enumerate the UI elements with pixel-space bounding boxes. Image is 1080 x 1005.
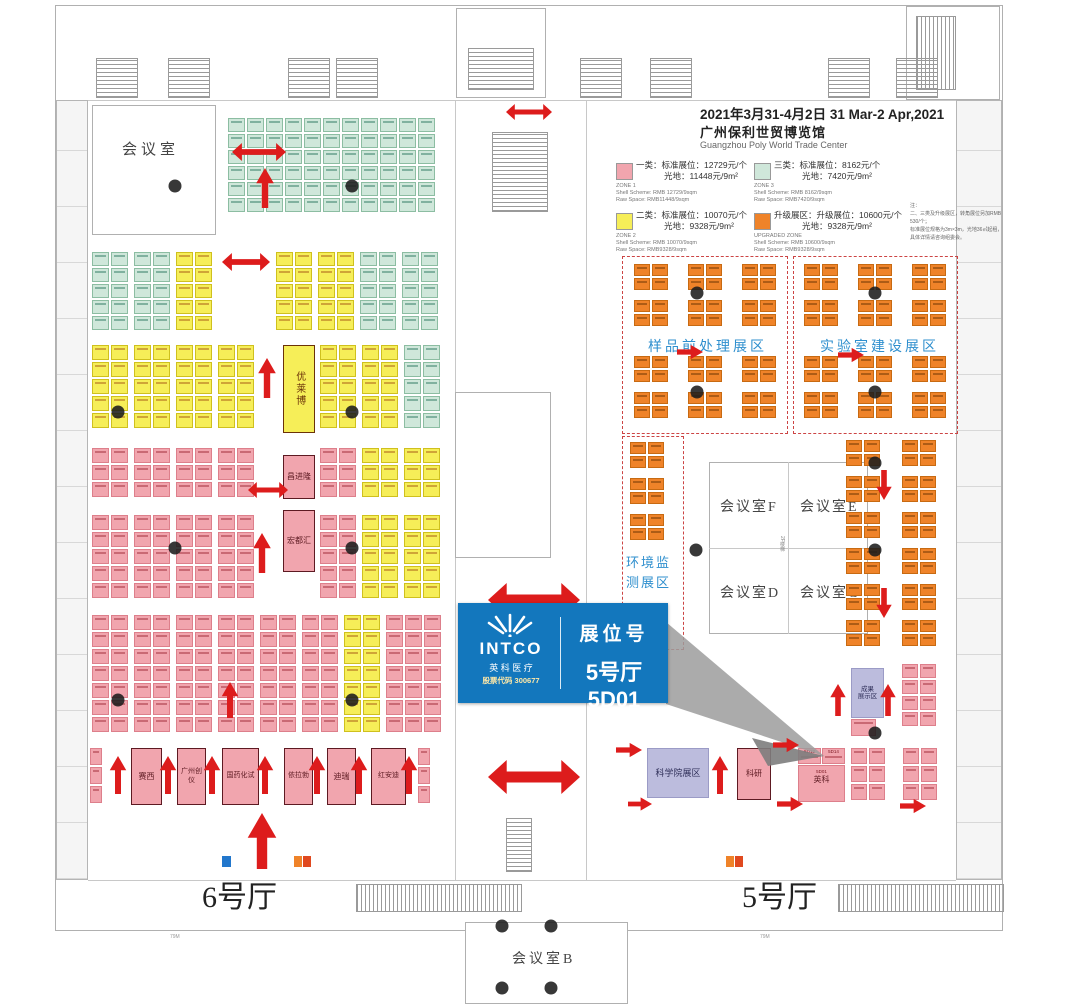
room-b-label: 会议室B (512, 948, 575, 968)
booth-cell (399, 134, 416, 148)
booth-cell (134, 632, 151, 647)
booth-row6-2-label: 国药化试 (227, 772, 255, 780)
booth-cell (404, 482, 421, 497)
booth-cell (218, 482, 235, 497)
booth-cell (921, 766, 937, 782)
booth-cell (424, 717, 441, 732)
booth-cell (134, 379, 151, 394)
hall5-escalator (838, 884, 1004, 912)
booth-cell (134, 566, 151, 581)
booth-cell (846, 584, 862, 596)
booth-cell (858, 356, 874, 368)
booth-cell (279, 717, 296, 732)
booth-cell (362, 482, 379, 497)
booth-cell (379, 252, 396, 266)
booth-cell (380, 150, 397, 164)
booth-cell (876, 392, 892, 404)
booth-cell (399, 118, 416, 132)
booth-cell (323, 198, 340, 212)
booth-cell (92, 666, 109, 681)
hall6-escalator (356, 884, 522, 912)
stair-core (580, 58, 622, 98)
booth-cell (920, 620, 936, 632)
booth-cell (218, 465, 235, 480)
legend-zone2: 二类：标准展位：10070元/个光地：9328元/9m² ZONE 2Shell… (616, 210, 748, 254)
booth-cell (404, 362, 421, 377)
booth-cell (920, 490, 936, 502)
legend-zone3-en1: ZONE 3 (754, 183, 774, 189)
booth-cell (339, 396, 356, 411)
booth-cell (111, 632, 128, 647)
booth-cell (912, 300, 928, 312)
booth-cell (920, 634, 936, 646)
legend-zone2-en3: Raw Space: RMB9328/9sqm (616, 247, 687, 253)
booth-cell (851, 719, 876, 736)
booth-cell (869, 784, 885, 800)
booth-cell (302, 717, 319, 732)
booth-cell (92, 300, 109, 314)
booth-cell (176, 700, 193, 715)
booth-cell (176, 632, 193, 647)
booth-cell (237, 549, 254, 564)
booth-cell (423, 583, 440, 598)
booth-cell (176, 532, 193, 547)
booth-cell (421, 268, 438, 282)
booth-cell (339, 362, 356, 377)
booth-cell (92, 396, 109, 411)
booth-cell (92, 316, 109, 330)
booth-cell (846, 440, 862, 452)
booth-cell (846, 620, 862, 632)
booth-cell (405, 615, 422, 630)
booth-cell (869, 748, 885, 764)
room-d-label: 会议室D (720, 582, 780, 602)
booth-cell (285, 182, 302, 196)
booth-cell (111, 379, 128, 394)
booth-cell (930, 300, 946, 312)
booth-cell (92, 566, 109, 581)
booth-cell (176, 649, 193, 664)
booth-cell (344, 649, 361, 664)
legend-upgraded-en2: Shell Scheme: RMB 10600/9sqm (754, 240, 835, 246)
booth-cell (237, 666, 254, 681)
booth-cell (237, 413, 254, 428)
booth-cell (339, 379, 356, 394)
booth-cell (153, 362, 170, 377)
booth-cell (423, 379, 440, 394)
booth-cell (247, 134, 264, 148)
booth-cell (405, 666, 422, 681)
booth-cell (864, 584, 880, 596)
booth-cell (920, 476, 936, 488)
booth-cell (418, 748, 430, 765)
booth-cell (320, 396, 337, 411)
booth-cell (134, 362, 151, 377)
venue-name-en: Guangzhou Poly World Trade Center (700, 140, 847, 150)
booth-cell (218, 532, 235, 547)
booth-cell (321, 683, 338, 698)
academy-zone-block: 科学院展区 (647, 748, 709, 798)
booth-cell (176, 566, 193, 581)
booth-cell (402, 316, 419, 330)
legend-zone3: 三类：标准展位：8162元/个光地：7420元/9m² ZONE 3Shell … (754, 160, 886, 204)
booth-cell (323, 150, 340, 164)
booth-cell (320, 482, 337, 497)
booth-cell (153, 566, 170, 581)
booth-cell (362, 566, 379, 581)
booth-cell (804, 278, 820, 290)
booth-cell (237, 683, 254, 698)
booth-cell (276, 252, 293, 266)
booth-cell (822, 392, 838, 404)
booth-cell (337, 268, 354, 282)
booth-cell (404, 566, 421, 581)
booth-cell (912, 356, 928, 368)
booth-cell (321, 700, 338, 715)
booth-hongduhui: 宏都汇 (283, 510, 315, 572)
booth-cell (804, 356, 820, 368)
sample-zone-label: 样品前处理展区 (648, 336, 767, 356)
booth-cell (111, 316, 128, 330)
booth-cell (742, 392, 758, 404)
booth-cell (634, 370, 650, 382)
booth-cell (134, 413, 151, 428)
amenity-marker-orange-1 (294, 856, 302, 867)
booth-cell (404, 515, 421, 530)
booth-cell (321, 666, 338, 681)
booth-cell (92, 448, 109, 463)
booth-cell (362, 345, 379, 360)
booth-cell (424, 649, 441, 664)
booth-row6-0: 赛西 (131, 748, 162, 805)
booth-cell (237, 362, 254, 377)
booth-cell (237, 465, 254, 480)
booth-cell (902, 620, 918, 632)
booth-cell (111, 345, 128, 360)
booth-cell (381, 549, 398, 564)
booth-cell (195, 362, 212, 377)
booth-cell (339, 515, 356, 530)
booth-cell (153, 700, 170, 715)
booth-cell (176, 448, 193, 463)
booth-cell (247, 182, 264, 196)
booth-cell (360, 316, 377, 330)
booth-cell (339, 549, 356, 564)
booth-cell (688, 314, 704, 326)
booth-cell (295, 316, 312, 330)
booth-cell (195, 566, 212, 581)
booth-cell (380, 182, 397, 196)
booth-cell (320, 566, 337, 581)
booth-cell (337, 252, 354, 266)
booth-cell (320, 362, 337, 377)
booth-cell (339, 345, 356, 360)
legend: 一类：标准展位：12729元/个光地：11448元/9m² ZONE 1Shel… (616, 160, 1006, 252)
booth-cell (134, 396, 151, 411)
booth-cell (218, 615, 235, 630)
booth-cell (195, 345, 212, 360)
booth-cell (423, 566, 440, 581)
intco-code-cell-2: 5D14 (822, 748, 845, 764)
booth-cell (864, 620, 880, 632)
legend-zone3-cn2: 光地：7420元/9m² (802, 171, 872, 181)
booth-cell (380, 118, 397, 132)
booth-cell (111, 465, 128, 480)
booth-cell (111, 549, 128, 564)
booth-cell (90, 786, 102, 803)
meeting-room-label: 会议室 (122, 138, 179, 159)
booth-cell (362, 532, 379, 547)
booth-cell (153, 284, 170, 298)
booth-cell (804, 406, 820, 418)
booth-cell (846, 490, 862, 502)
booth-cell (742, 356, 758, 368)
intco-stock: 股票代码 300677 (471, 675, 551, 686)
booth-cell (134, 515, 151, 530)
booth-cell (648, 456, 664, 468)
stair-core (650, 58, 692, 98)
booth-cell (176, 413, 193, 428)
booth-row6-3-label: 依拉勃 (288, 772, 309, 780)
legend-upgraded-cn1: 升级展区：升级展位：10600元/个 (774, 210, 902, 220)
booth-cell (688, 356, 704, 368)
booth-cell (386, 700, 403, 715)
booth-cell (218, 413, 235, 428)
booth-cell (111, 583, 128, 598)
booth-cell (424, 632, 441, 647)
booth-cell (361, 118, 378, 132)
booth-cell (153, 379, 170, 394)
booth-cell (237, 448, 254, 463)
booth-cell (418, 786, 430, 803)
booth-cell (195, 632, 212, 647)
stair-core (96, 58, 138, 98)
booth-cell (323, 134, 340, 148)
booth-cell (218, 717, 235, 732)
booth-cell (869, 766, 885, 782)
booth-cell (320, 465, 337, 480)
intco-main-cell: 5D01 英科 (798, 765, 845, 802)
booth-cell (912, 314, 928, 326)
booth-cell (153, 683, 170, 698)
booth-cell (320, 515, 337, 530)
booth-cell (630, 456, 646, 468)
booth-cell (421, 300, 438, 314)
booth-cell (195, 465, 212, 480)
booth-cell (111, 700, 128, 715)
booth-cell (176, 316, 193, 330)
booth-cell (688, 392, 704, 404)
booth-cell (902, 634, 918, 646)
booth-cell (404, 532, 421, 547)
central-core (455, 392, 551, 558)
booth-cell (360, 252, 377, 266)
intco-code-cell-1: 5D13 (798, 748, 821, 764)
booth-cell (903, 784, 919, 800)
booth-cell (386, 615, 403, 630)
booth-cell (195, 583, 212, 598)
booth-cell (337, 316, 354, 330)
booth-cell (706, 278, 722, 290)
booth-cell (111, 413, 128, 428)
booth-cell (846, 634, 862, 646)
booth-cell (418, 134, 435, 148)
left-service-corridor (56, 100, 88, 880)
booth-cell (648, 492, 664, 504)
booth-cell (858, 314, 874, 326)
booth-cell (902, 526, 918, 538)
booth-cell (92, 717, 109, 732)
corridor-wall-right (586, 100, 587, 880)
legend-zone1-en1: ZONE 1 (616, 183, 636, 189)
legend-zone3-en3: Raw Space: RMB7420/9sqm (754, 197, 825, 203)
booth-cell (858, 300, 874, 312)
event-date: 2021年3月31-4月2日 31 Mar-2 Apr,2021 (700, 103, 944, 123)
booth-cell (237, 532, 254, 547)
booth-cell (176, 300, 193, 314)
booth-cell (176, 583, 193, 598)
booth-cell (111, 615, 128, 630)
booth-cell (344, 683, 361, 698)
booth-cell (237, 700, 254, 715)
booth-cell (218, 515, 235, 530)
booth-cell (260, 683, 277, 698)
legend-zone2-swatch (616, 213, 633, 230)
booth-cell (218, 583, 235, 598)
booth-cell (134, 615, 151, 630)
booth-cell (111, 532, 128, 547)
booth-cell (706, 264, 722, 276)
booth-cell (822, 356, 838, 368)
booth-cell (920, 512, 936, 524)
booth-cell (134, 448, 151, 463)
booth-cell (92, 362, 109, 377)
callout-booth-number: 5号厅5D01 (562, 655, 666, 713)
booth-cell (920, 562, 936, 574)
booth-cell (630, 492, 646, 504)
booth-cell (302, 683, 319, 698)
booth-cell (688, 406, 704, 418)
booth-changjinlong-label: 昌进隆 (287, 472, 311, 481)
booth-cell (418, 166, 435, 180)
booth-cell (423, 362, 440, 377)
booth-cell (111, 252, 128, 266)
booth-cell (363, 632, 380, 647)
booth-cell (237, 649, 254, 664)
booth-hongduhui-label: 宏都汇 (287, 536, 311, 545)
booth-cell (652, 278, 668, 290)
legend-zone2-cn2: 光地：9328元/9m² (664, 221, 734, 231)
booth-cell (195, 284, 212, 298)
booth-cell (260, 632, 277, 647)
booth-cell (760, 278, 776, 290)
venue-name-cn: 广州保利世贸博览馆 (700, 122, 826, 141)
booth-cell (279, 649, 296, 664)
booth-cell (92, 515, 109, 530)
booth-cell (912, 392, 928, 404)
booth-cell (237, 345, 254, 360)
booth-cell (176, 615, 193, 630)
booth-cell (153, 515, 170, 530)
booth-cell (195, 717, 212, 732)
booth-cell (921, 784, 937, 800)
booth-cell (405, 683, 422, 698)
booth-cell (134, 268, 151, 282)
booth-cell (228, 150, 245, 164)
booth-cell (634, 392, 650, 404)
lower-escalator (506, 818, 532, 872)
booth-cell (930, 264, 946, 276)
booth-cell (92, 649, 109, 664)
booth-cell (279, 700, 296, 715)
booth-cell (90, 748, 102, 765)
fedc-horizontal-wall (709, 548, 868, 549)
booth-cell (418, 150, 435, 164)
booth-cell (864, 490, 880, 502)
booth-cell (92, 482, 109, 497)
booth-cell (634, 314, 650, 326)
booth-cell (634, 406, 650, 418)
booth-cell (360, 300, 377, 314)
stair-core (828, 58, 870, 98)
booth-cell (195, 396, 212, 411)
booth-cell (344, 717, 361, 732)
booth-cell (920, 712, 936, 726)
booth-cell (195, 482, 212, 497)
hall5-label: 5号厅 (742, 872, 817, 916)
booth-cell (902, 490, 918, 502)
booth-cell (399, 198, 416, 212)
booth-cell (323, 118, 340, 132)
booth-cell (111, 666, 128, 681)
legend-zone1-swatch (616, 163, 633, 180)
booth-cell (342, 198, 359, 212)
stair-core (168, 58, 210, 98)
booth-cell (237, 615, 254, 630)
booth-cell (424, 615, 441, 630)
booth-cell (153, 583, 170, 598)
booth-cell (822, 278, 838, 290)
booth-cell (228, 166, 245, 180)
booth-cell (912, 278, 928, 290)
booth-cell (176, 362, 193, 377)
booth-cell (276, 316, 293, 330)
booth-cell (237, 379, 254, 394)
booth-cell (903, 766, 919, 782)
booth-cell (381, 532, 398, 547)
booth-row6-4: 迪瑞 (327, 748, 356, 805)
booth-cell (920, 440, 936, 452)
booth-cell (260, 717, 277, 732)
booth-youlaibo: 优莱博 (283, 345, 315, 433)
booth-cell (176, 284, 193, 298)
booth-cell (930, 392, 946, 404)
booth-cell (228, 198, 245, 212)
booth-cell (634, 278, 650, 290)
booth-cell (153, 649, 170, 664)
booth-cell (363, 717, 380, 732)
booth-cell (134, 666, 151, 681)
booth-row6-2: 国药化试 (222, 748, 259, 805)
booth-cell (134, 345, 151, 360)
booth-cell (760, 406, 776, 418)
booth-cell (153, 345, 170, 360)
booth-cell (920, 696, 936, 710)
booth-cell (363, 649, 380, 664)
booth-cell (92, 632, 109, 647)
booth-cell (363, 615, 380, 630)
booth-cell (742, 406, 758, 418)
